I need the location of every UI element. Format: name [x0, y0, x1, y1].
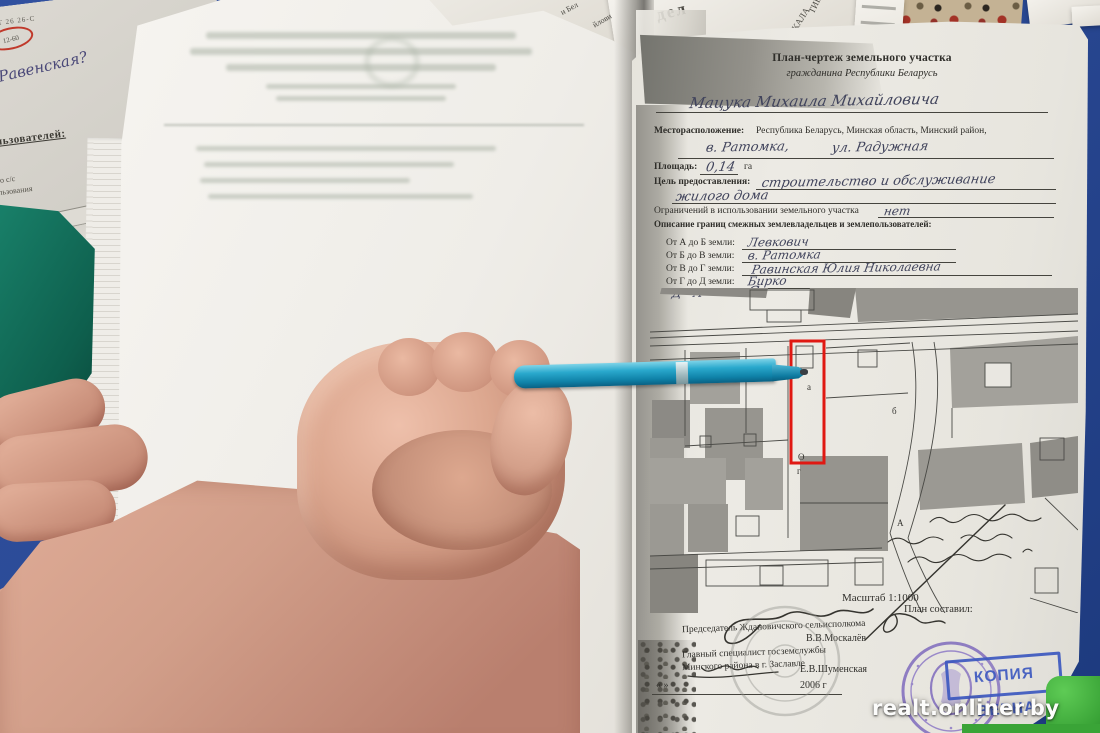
boundary-value: в. Ратомка: [747, 247, 822, 262]
date-quotes: « »: [656, 680, 669, 691]
plan-subtitle: гражданина Республики Беларусь: [712, 68, 1012, 79]
bleedthrough-stamp: [364, 36, 420, 88]
bleedthrough-line: [204, 162, 454, 167]
handwritten-annotation-line: [930, 514, 1041, 522]
form-underline: [756, 189, 1056, 190]
area-unit: га: [744, 162, 752, 172]
area-label: Площадь:: [654, 162, 697, 172]
signature-author: [884, 614, 945, 632]
handwritten-annotation-line: [908, 549, 1032, 562]
bleedthrough-line: [208, 194, 473, 199]
paper-corner-small: [1071, 5, 1100, 27]
faint-round-stamp: [726, 602, 844, 720]
knuckle: [432, 332, 498, 392]
map-mark: г: [797, 466, 801, 476]
form-underline: [700, 174, 738, 175]
restrictions-label: Ограничений в использовании земельного у…: [654, 206, 859, 216]
watermark: realt.onliner.by: [872, 696, 1059, 720]
plan-title: План-чертеж земельного участка: [712, 52, 1012, 64]
boundaries-heading: Описание границ смежных землевладельцев …: [654, 219, 932, 229]
form-underline: [672, 203, 1056, 204]
map-mark: б: [892, 406, 897, 416]
bleedthrough-line: [276, 96, 446, 101]
form-underline: [656, 112, 1048, 113]
location-written: ул. Радужная: [831, 139, 930, 156]
purpose-label: Цель предоставления:: [654, 177, 750, 187]
bleedthrough-line: [190, 48, 532, 55]
green-strip: [962, 724, 1100, 733]
map-mark: О: [798, 452, 805, 462]
form-underline: [878, 217, 1054, 218]
bleedthrough-line: [226, 64, 496, 71]
document-heading-fragment: ользователей:: [0, 128, 66, 149]
map-scale: Масштаб 1:1000: [842, 592, 919, 604]
document-text-fragment: го с/с: [0, 174, 16, 185]
location-printed: Республика Беларусь, Минская область, Ми…: [756, 126, 1066, 136]
location-written: в. Ратомка,: [705, 139, 791, 155]
bleedthrough-line: [200, 178, 410, 183]
bleedthrough-line: [206, 32, 516, 39]
handwritten-annotation-line: [888, 534, 1012, 544]
plan-author-label: План составил:: [904, 604, 973, 615]
handwritten-note: Равенская?: [0, 48, 89, 86]
knuckle: [378, 338, 440, 396]
bleedthrough-rule: [164, 124, 584, 126]
bleedthrough-line: [266, 84, 456, 89]
boundary-label: От А до Б земли:: [666, 238, 735, 248]
pen-metal-band: [676, 362, 689, 384]
form-underline: [742, 275, 1052, 276]
boundary-label: От Б до В земли:: [666, 251, 734, 261]
location-label: Месторасположение:: [654, 126, 744, 136]
map-mark: а: [807, 382, 811, 392]
document-text-fragment: льзования: [0, 184, 33, 197]
red-circled-number: 12-60: [0, 23, 36, 55]
area-value-handwritten: 0,14: [705, 160, 736, 176]
photo-scene: и Бел йлови пер. дел КАЛА ТИЕ ШТ 26 26-С…: [0, 0, 1100, 733]
pen-nib: [800, 369, 808, 375]
boundary-label: От В до Г земли:: [666, 264, 734, 274]
bleedthrough-line: [196, 146, 496, 151]
